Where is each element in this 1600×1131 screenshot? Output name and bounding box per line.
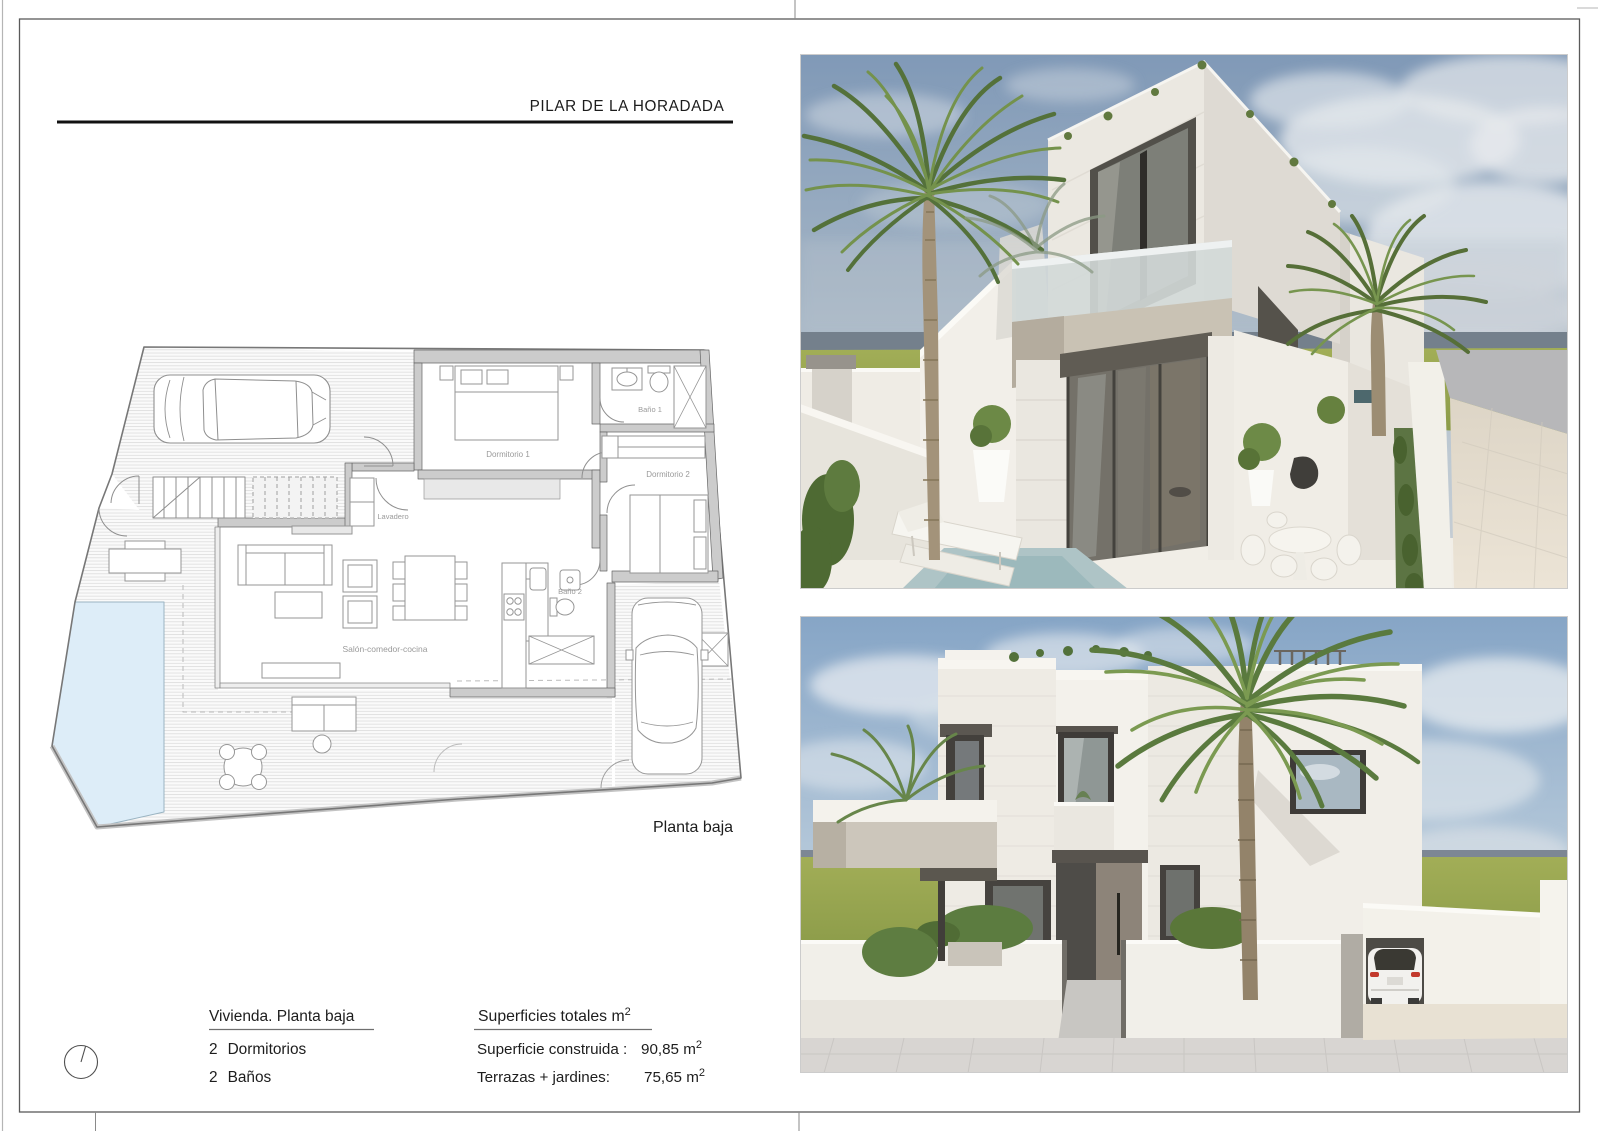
- svg-text:Salón-comedor-cocina: Salón-comedor-cocina: [342, 644, 427, 654]
- svg-text:Planta baja: Planta baja: [653, 819, 733, 836]
- svg-text:Baño 1: Baño 1: [638, 405, 662, 414]
- svg-text:Terrazas + jardines: 75,65 m2: Terrazas + jardines: 75,65 m2: [477, 1067, 705, 1086]
- svg-text:Baño 2: Baño 2: [558, 587, 582, 596]
- svg-text:Lavadero: Lavadero: [377, 512, 408, 521]
- svg-text:PILAR DE LA HORADADA: PILAR DE LA HORADADA: [530, 98, 725, 115]
- svg-text:Superficies totales m2: Superficies totales m2: [478, 1006, 631, 1025]
- svg-text:Superficie construida : 90,85: Superficie construida : 90,85 m2: [477, 1039, 702, 1058]
- svg-text:Dormitorio 1: Dormitorio 1: [486, 450, 530, 459]
- svg-text:Dormitorio 2: Dormitorio 2: [646, 470, 690, 479]
- svg-text:Vivienda. Planta baja: Vivienda. Planta baja: [209, 1008, 355, 1025]
